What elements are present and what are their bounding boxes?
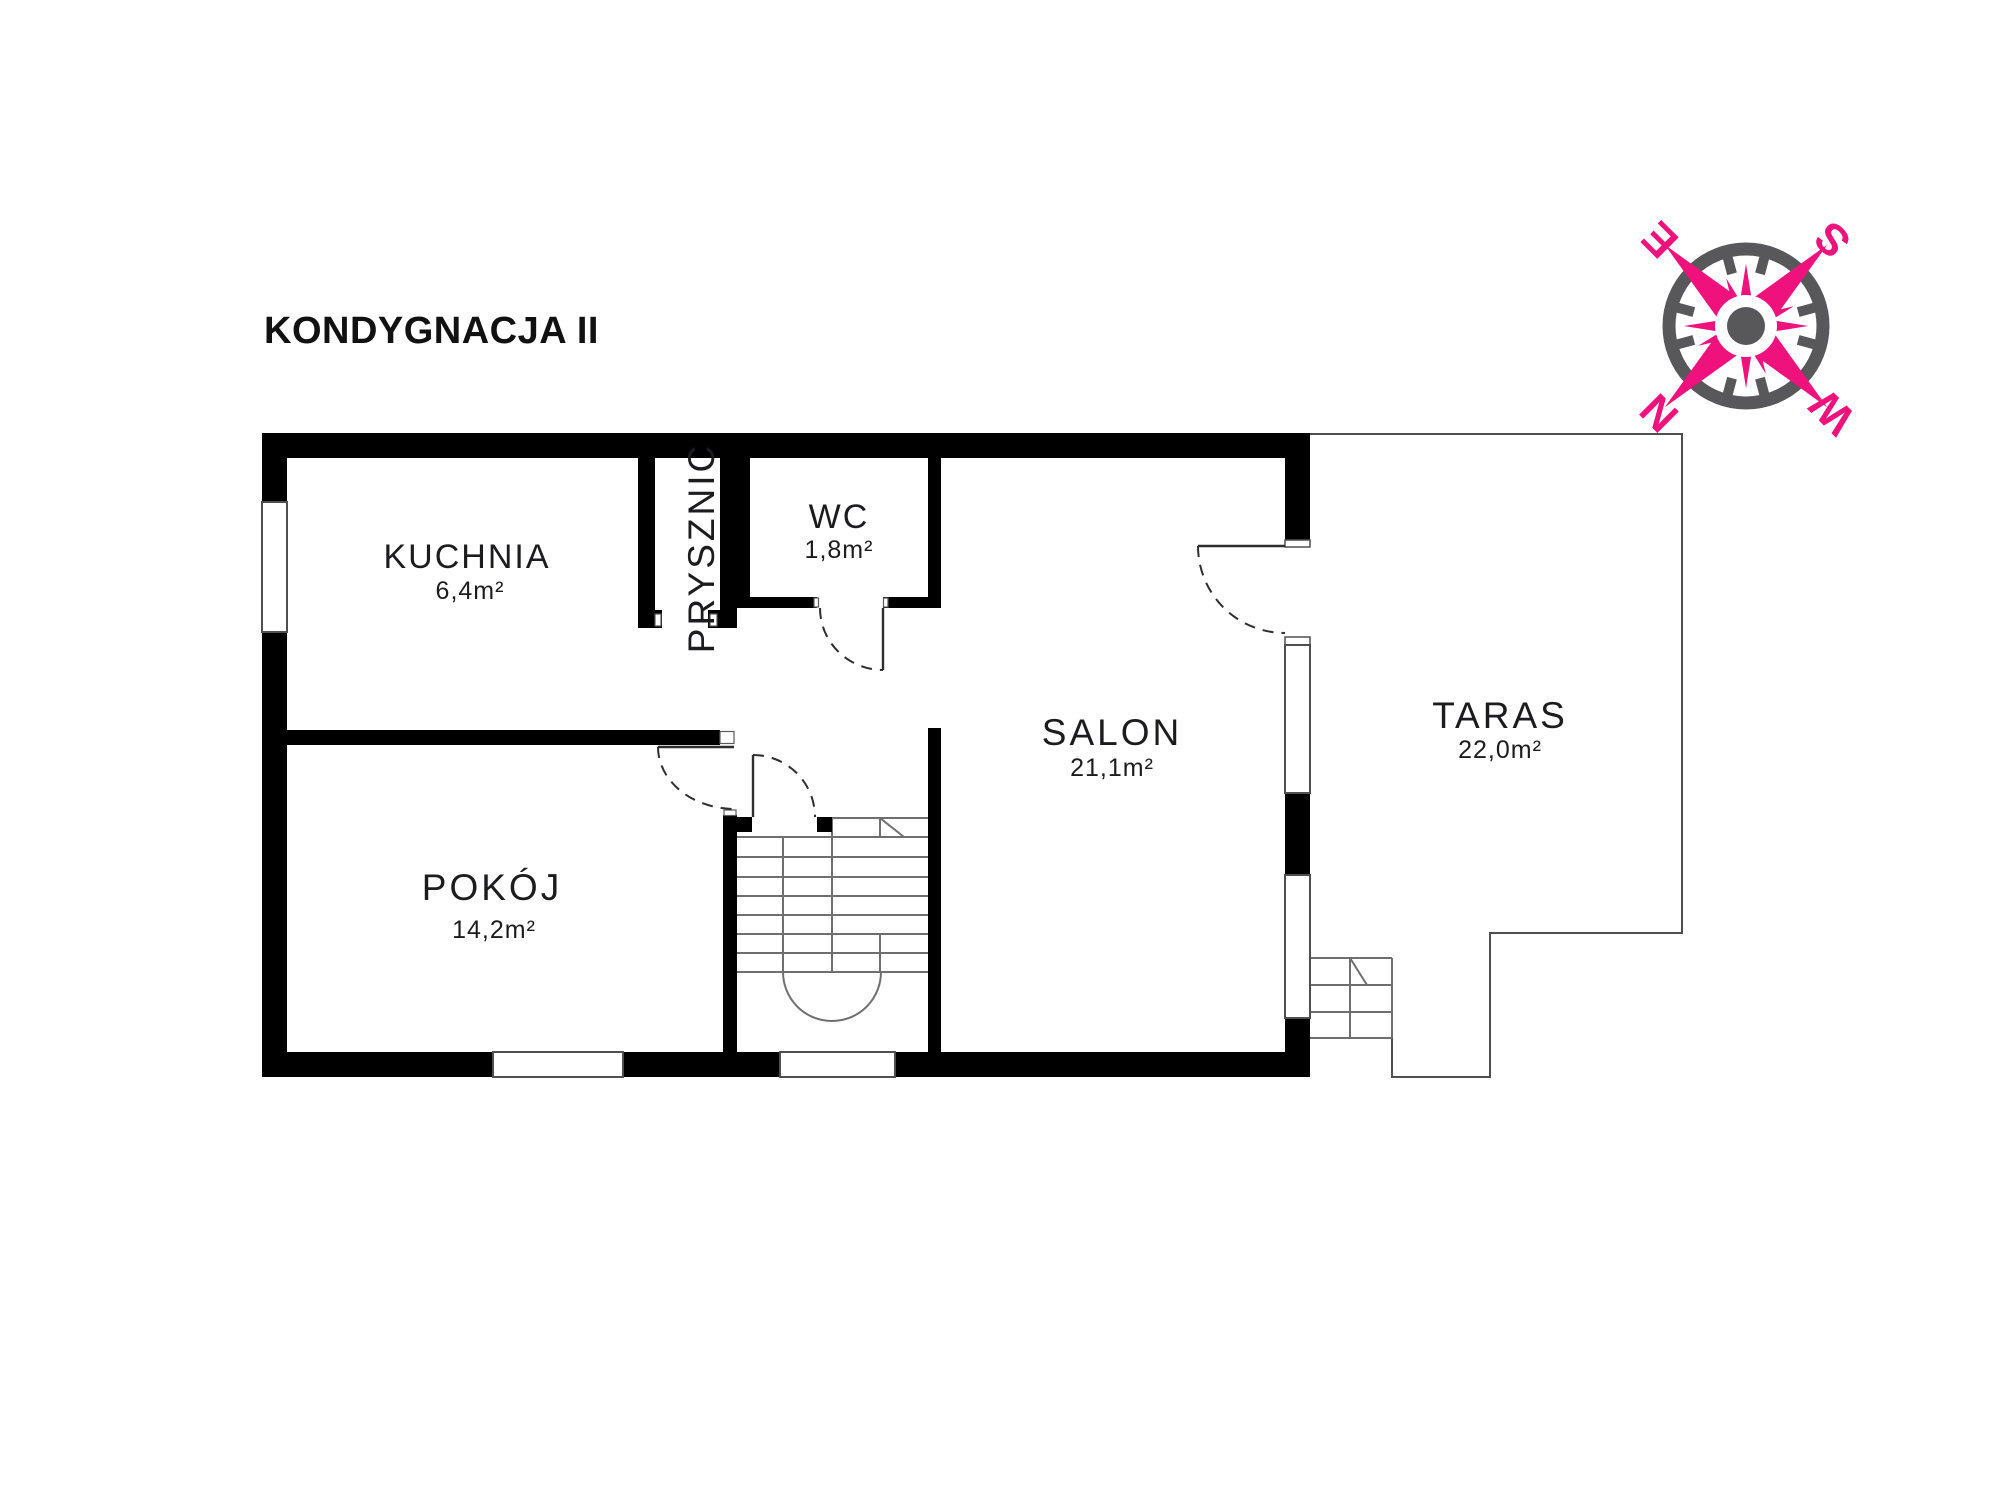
room-label-kuchnia: KUCHNIA xyxy=(383,538,550,576)
wall-wc-bottom-right xyxy=(883,597,928,608)
room-labels: KUCHNIA 6,4m² PRYSZNIC WC 1,8m² SALON 21… xyxy=(383,443,1567,944)
floor-plan-page: KONDYGNACJA II xyxy=(0,0,2000,1500)
wall-shower-left xyxy=(638,458,655,628)
wall-right-mid xyxy=(1285,793,1310,875)
stairs-turn-arc xyxy=(783,972,881,1021)
window-left-kuchnia xyxy=(262,502,287,632)
exterior-stairs xyxy=(1308,958,1392,1038)
jamb-kuchnia-door xyxy=(720,732,734,744)
jamb-shower-left xyxy=(655,614,661,626)
wall-stairwell-left xyxy=(723,815,737,1052)
window-bottom-stairs xyxy=(780,1052,895,1077)
sill-terrace-door-bottom xyxy=(1285,637,1310,645)
compass-rose-icon: N E S W xyxy=(1545,125,1950,530)
door-terrace xyxy=(1198,546,1285,633)
wall-kuchnia-pokoj xyxy=(287,730,720,745)
wall-stub-right xyxy=(817,817,832,832)
wall-stub-left xyxy=(737,817,752,832)
room-area-taras: 22,0m² xyxy=(1458,736,1542,764)
wall-top xyxy=(262,433,1310,458)
room-area-salon: 21,1m² xyxy=(1070,754,1154,782)
room-label-pokoj: POKÓJ xyxy=(422,867,562,908)
jamb-wc-right xyxy=(884,598,889,607)
window-right-lower xyxy=(1285,875,1310,1018)
wall-wc-bottom-left xyxy=(737,597,817,608)
jamb-stairwell-top xyxy=(724,810,736,816)
room-area-kuchnia: 6,4m² xyxy=(436,577,505,605)
jamb-wc-left xyxy=(814,598,819,607)
room-label-taras: TARAS xyxy=(1432,695,1568,736)
wall-shower-right xyxy=(720,458,737,628)
wall-wc-left xyxy=(737,458,750,597)
room-area-wc: 1,8m² xyxy=(805,536,874,564)
window-right-upper xyxy=(1285,645,1310,793)
door-wc xyxy=(820,608,883,670)
wall-right-upper xyxy=(1285,458,1310,540)
floor-plan-svg: KUCHNIA 6,4m² PRYSZNIC WC 1,8m² SALON 21… xyxy=(0,0,2000,1500)
staircase xyxy=(737,818,928,1021)
doors xyxy=(658,546,1285,817)
sill-terrace-door-top xyxy=(1285,540,1310,547)
window-bottom-pokoj xyxy=(493,1052,623,1077)
wall-wc-right xyxy=(928,458,941,608)
door-pokoj xyxy=(658,747,735,809)
door-hall xyxy=(753,755,815,817)
room-label-prysznic: PRYSZNIC xyxy=(681,443,722,653)
compass-star-group: N E S W xyxy=(1545,125,1950,530)
room-label-wc: WC xyxy=(809,498,870,536)
wall-salon-left xyxy=(928,728,941,1052)
room-label-salon: SALON xyxy=(1042,712,1182,753)
wall-right-lower xyxy=(1285,1018,1310,1052)
room-area-pokoj: 14,2m² xyxy=(452,916,536,944)
